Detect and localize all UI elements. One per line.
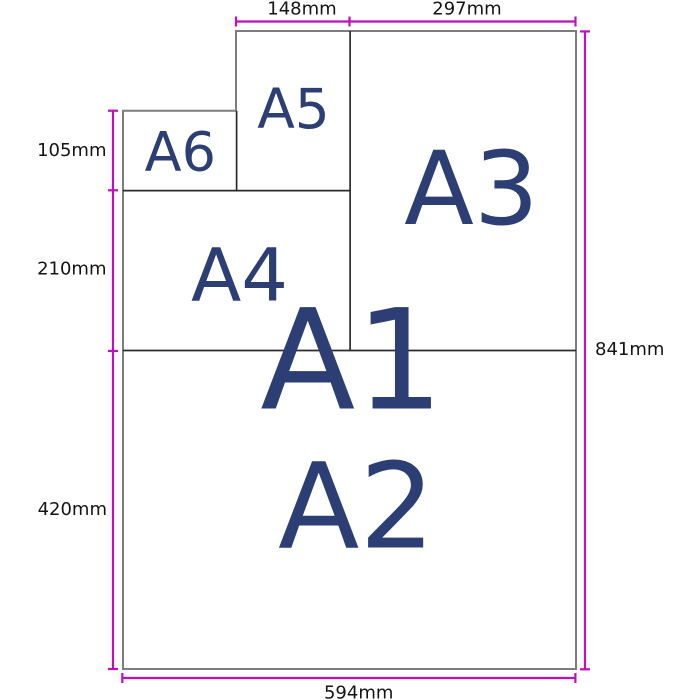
svg-text:A2: A2 [278, 439, 435, 577]
svg-text:A5: A5 [257, 77, 330, 141]
svg-text:A6: A6 [145, 121, 216, 184]
svg-text:420mm: 420mm [38, 499, 107, 520]
svg-text:148mm: 148mm [267, 0, 336, 20]
svg-text:841mm: 841mm [595, 339, 664, 360]
svg-text:297mm: 297mm [432, 0, 501, 20]
svg-text:105mm: 105mm [37, 140, 106, 161]
svg-text:594mm: 594mm [324, 683, 393, 700]
svg-text:A3: A3 [404, 130, 539, 249]
svg-text:210mm: 210mm [37, 258, 106, 279]
svg-text:A4: A4 [191, 234, 288, 319]
